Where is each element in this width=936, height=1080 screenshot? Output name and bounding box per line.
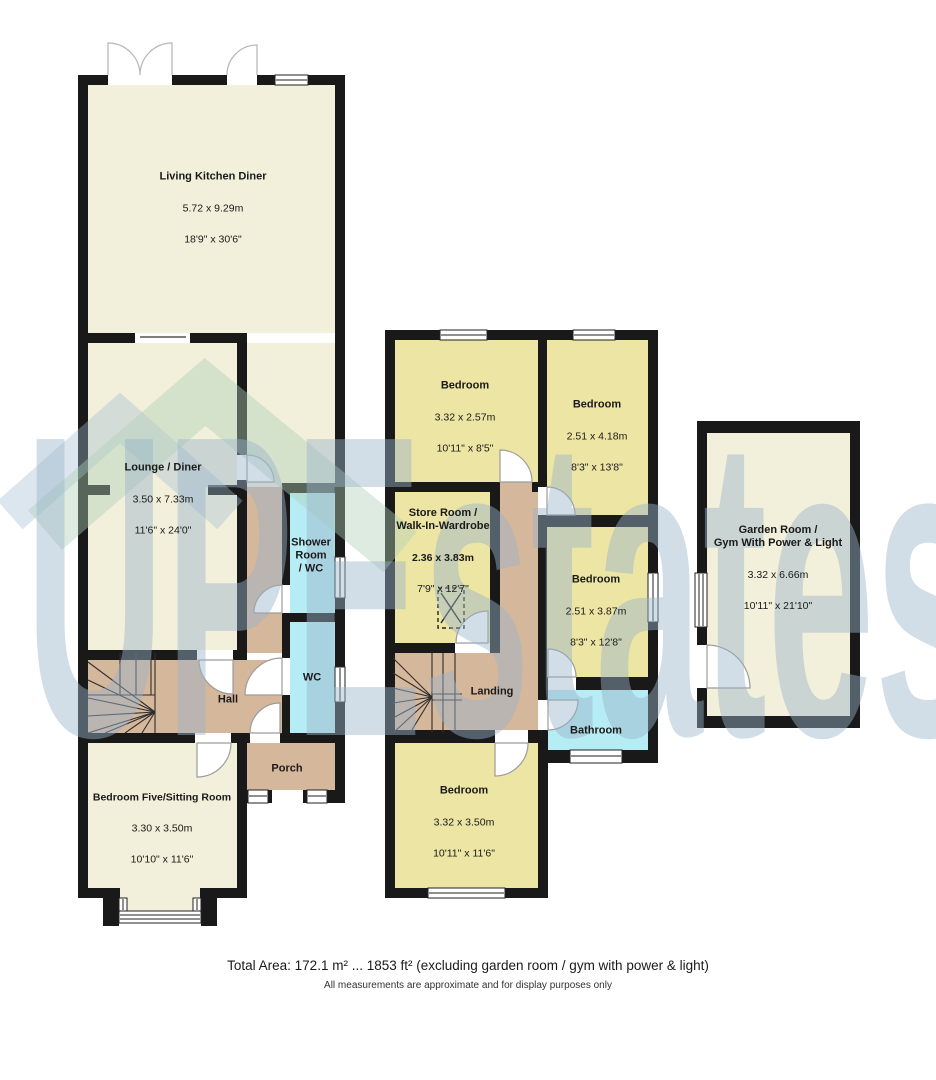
room-label-bedroom-back: Bedroom 3.32 x 3.50m 10'11" x 11'6" — [433, 765, 495, 878]
room-name: Landing — [471, 686, 514, 699]
room-label-living-kitchen-diner: Living Kitchen Diner 5.72 x 9.29m 18'9" … — [160, 151, 267, 264]
room-dim-imperial: 8'3" x 12'8" — [566, 636, 627, 648]
room-hall-corridor — [247, 487, 282, 653]
room-dim-metric: 3.32 x 3.50m — [433, 816, 495, 828]
room-name: Bedroom — [433, 784, 495, 797]
room-name: Porch — [271, 763, 302, 776]
room-dim-imperial: 10'11" x 21'10" — [714, 600, 842, 612]
room-dim-metric: 3.32 x 6.66m — [714, 569, 842, 581]
room-dim-imperial: 18'9" x 30'6" — [160, 233, 267, 245]
room-label-bedroom-front: Bedroom 3.32 x 2.57m 10'11" x 8'5" — [435, 360, 496, 473]
room-dim-imperial: 10'10" x 11'6" — [93, 854, 231, 866]
room-label-store-room: Store Room / Walk-In-Wardrobe 2.36 x 3.8… — [396, 488, 489, 614]
room-dim-imperial: 8'3" x 13'8" — [567, 461, 628, 473]
room-landing — [393, 653, 538, 730]
room-dim-metric: 3.50 x 7.33m — [125, 493, 202, 505]
room-dim-metric: 2.51 x 4.18m — [567, 430, 628, 442]
room-label-wc: WC — [303, 653, 321, 704]
room-label-garden-room: Garden Room / Gym With Power & Light 3.3… — [714, 505, 842, 631]
room-dim-imperial: 7'9" x 12'7" — [396, 583, 489, 595]
room-name: Bedroom Five/Sitting Room — [93, 792, 231, 804]
room-label-lounge-diner: Lounge / Diner 3.50 x 7.33m 11'6" x 24'0… — [125, 442, 202, 555]
room-label-bedroom-middle: Bedroom 2.51 x 3.87m 8'3" x 12'8" — [566, 554, 627, 667]
room-dim-metric: 2.51 x 3.87m — [566, 605, 627, 617]
bay-window-recess — [120, 888, 200, 912]
room-label-landing: Landing — [471, 667, 514, 718]
room-label-porch: Porch — [271, 744, 302, 795]
room-dim-metric: 2.36 x 3.83m — [396, 552, 489, 564]
room-landing-corridor — [500, 482, 538, 653]
disclaimer-text: All measurements are approximate and for… — [0, 980, 936, 991]
room-label-bedroom-right: Bedroom 2.51 x 4.18m 8'3" x 13'8" — [567, 379, 628, 492]
room-label-bedroom-five: Bedroom Five/Sitting Room 3.30 x 3.50m 1… — [93, 773, 231, 886]
room-name: Bedroom — [435, 379, 496, 392]
room-dim-metric: 3.32 x 2.57m — [435, 411, 496, 423]
room-dim-imperial: 10'11" x 8'5" — [435, 442, 496, 454]
room-name: Hall — [218, 694, 238, 707]
window — [695, 573, 707, 627]
room-name: Garden Room / Gym With Power & Light — [714, 524, 842, 550]
floorplan-page: UPEstates Living Kitchen Diner 5.72 x 9.… — [0, 0, 936, 1080]
room-name: Shower Room / WC — [291, 537, 331, 576]
room-name: Bathroom — [570, 725, 622, 738]
room-name: Lounge / Diner — [125, 461, 202, 474]
room-name: Store Room / Walk-In-Wardrobe — [396, 507, 489, 533]
room-label-hall: Hall — [218, 675, 238, 726]
room-dim-imperial: 11'6" x 24'0" — [125, 524, 202, 536]
total-area-text: Total Area: 172.1 m² ... 1853 ft² (exclu… — [0, 958, 936, 973]
room-name: Bedroom — [567, 398, 628, 411]
room-dim-metric: 3.30 x 3.50m — [93, 823, 231, 835]
room-name: Bedroom — [566, 573, 627, 586]
room-label-bathroom: Bathroom — [570, 706, 622, 757]
room-name: WC — [303, 672, 321, 685]
footer: Total Area: 172.1 m² ... 1853 ft² (exclu… — [0, 958, 936, 991]
room-name: Living Kitchen Diner — [160, 170, 267, 183]
room-dim-metric: 5.72 x 9.29m — [160, 202, 267, 214]
room-dim-imperial: 10'11" x 11'6" — [433, 847, 495, 859]
room-label-shower-room-wc: Shower Room / WC — [291, 518, 331, 595]
